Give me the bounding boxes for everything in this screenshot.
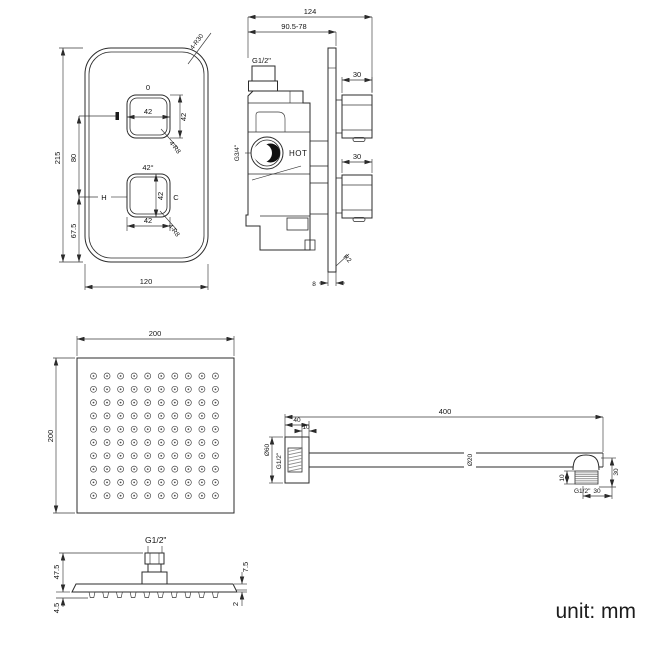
top-thread-label: G1/2" (252, 56, 271, 65)
plate-thickness-label: 8 (312, 281, 316, 288)
tip-drop-dim: 30 (613, 468, 620, 476)
head-connector-nut (145, 553, 164, 564)
flange-depth-dim: 40 (293, 417, 301, 424)
nozzle-grid (91, 373, 219, 499)
upper-knob-radius-note: 4-R8 (167, 140, 181, 156)
side-upper-knob[interactable] (336, 95, 372, 142)
dim-knob-spacing: 80 (69, 154, 78, 162)
lower-knob-dim-height: 42 (156, 192, 165, 200)
valve-front-view: 4-R30 215 80 67.5 120 0 42 (53, 33, 211, 290)
dim-depth-range: 90.5-78 (281, 22, 306, 31)
valve-body: HOT G3/4" (234, 91, 328, 250)
edge-height-dim: 7.5 (241, 562, 250, 572)
upper-knob-dim-height: 42 (179, 113, 188, 121)
head-side-dimensions: 47.5 4.5 7.5 2 (52, 553, 250, 613)
arm-side-view: 400 40 10 Ø60 G1/2" Ø20 10 G1/2" 30 (264, 407, 620, 499)
tip-thread-length-dim: 10 (559, 474, 566, 482)
valve-front-dimensions: 215 80 67.5 120 (53, 48, 208, 290)
inlet-thread-label: G3/4" (234, 144, 241, 161)
head-connector-boss (142, 572, 167, 584)
head-face-view: 200 200 (46, 329, 234, 513)
tip-thread-hatch (576, 473, 598, 482)
lower-knob-label: 42° (142, 163, 153, 172)
lower-knob-protrusion-dim: 30 (353, 152, 361, 161)
cold-side-label: C (173, 193, 179, 202)
upper-knob-protrusion-dim: 30 (353, 70, 361, 79)
valve-plate-outline (85, 48, 208, 262)
lower-knob[interactable]: 42° H C 42 42 4-R8 (101, 163, 181, 239)
valve-side-dimensions: 124 90.5-78 (248, 7, 372, 92)
unit-label: unit: mm (555, 600, 636, 624)
upper-knob[interactable]: 0 42 42 4-R8 (127, 83, 188, 156)
head-side-view: G1/2" 47.5 4.5 7.5 2 (52, 535, 250, 613)
wall-plate (328, 48, 336, 272)
plate-corner-radius-note: 4-R30 (189, 33, 205, 52)
head-thread-label: G1/2" (145, 535, 166, 545)
arm-wall-flange (285, 437, 309, 483)
head-profile (72, 584, 237, 592)
panel-thickness-dim: 2 (231, 602, 240, 606)
valve-side-view: 124 90.5-78 G1/2" HOT G3/4" (234, 7, 372, 288)
dim-plate-height: 215 (53, 152, 62, 165)
side-nozzle-row (89, 592, 218, 598)
arm-elbow-bell (573, 455, 599, 470)
upper-knob-dim-width: 42 (144, 107, 152, 116)
plate-corner-radius-label: R2 (342, 253, 353, 264)
dim-bottom-offset: 67.5 (69, 224, 78, 239)
tip-thread-label: G1/2" (574, 488, 591, 495)
upper-knob-label: 0 (146, 83, 150, 92)
hot-side-label: H (101, 193, 106, 202)
knob-indicator-mark (116, 112, 120, 120)
arm-length-dim: 400 (439, 407, 452, 416)
head-height-dim-label: 47.5 (52, 565, 61, 580)
wall-thread-hatch (288, 449, 302, 472)
head-height-dim: 200 (46, 430, 55, 443)
side-lower-knob[interactable] (336, 175, 372, 222)
top-port (252, 66, 275, 81)
head-connector-neck (148, 564, 161, 572)
dim-plate-width: 120 (140, 277, 153, 286)
head-face-outline (77, 358, 234, 513)
top-port-collar (249, 81, 278, 91)
wall-thread-label: G1/2" (276, 452, 283, 469)
flange-diameter-label: Ø60 (264, 443, 271, 456)
dim-total-width: 124 (304, 7, 317, 16)
head-width-dim: 200 (149, 329, 162, 338)
lower-knob-dim-width: 42 (144, 216, 152, 225)
drawing-svg: 4-R30 215 80 67.5 120 0 42 (0, 0, 650, 650)
technical-drawing-page: 4-R30 215 80 67.5 120 0 42 (0, 0, 650, 650)
flange-lip-dim: 10 (302, 424, 310, 431)
plate-thickness-dim: 8 R2 (312, 253, 352, 288)
hot-label: HOT (289, 149, 307, 158)
nozzle-height-dim: 4.5 (52, 603, 61, 613)
tube-diameter-label: Ø20 (467, 453, 474, 466)
lower-knob-radius-note: 4-R8 (166, 223, 180, 239)
tip-offset-dim: 30 (593, 488, 601, 495)
